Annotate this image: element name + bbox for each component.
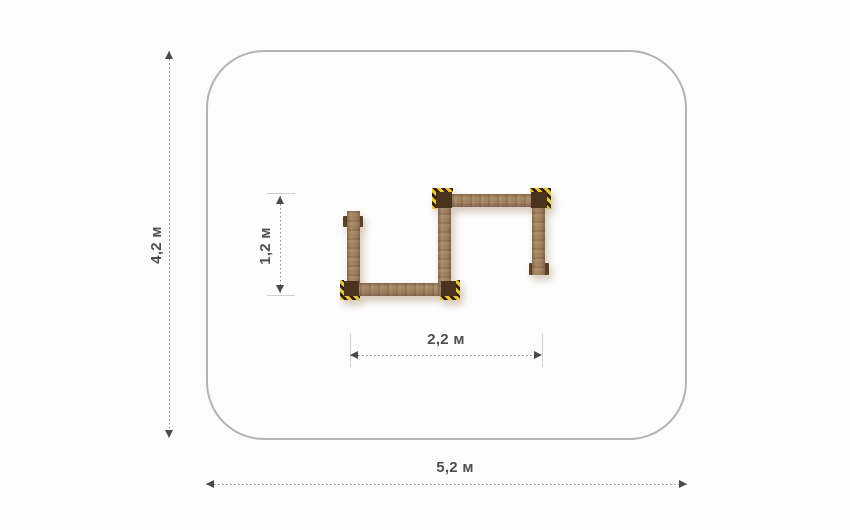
corner-guard-top-left bbox=[433, 189, 452, 208]
dimension-tick bbox=[267, 295, 295, 296]
dimension-line bbox=[350, 355, 542, 356]
hazard-stripe bbox=[530, 188, 551, 192]
dimension-tick bbox=[267, 193, 295, 194]
hazard-stripe bbox=[340, 296, 360, 300]
dimension-line bbox=[206, 484, 687, 485]
dimension-tick bbox=[542, 334, 543, 367]
corner-guard-bottom-right bbox=[441, 281, 459, 299]
hazard-stripe bbox=[440, 296, 460, 300]
arrowhead-left-icon bbox=[206, 480, 214, 488]
corner-guard-bottom-left bbox=[341, 281, 359, 299]
arrowhead-up-icon bbox=[276, 196, 284, 204]
arrowhead-right-icon bbox=[679, 480, 687, 488]
arrowhead-down-icon bbox=[165, 430, 173, 438]
dimension-label: 2,2 м bbox=[396, 331, 496, 348]
dimension-line bbox=[169, 51, 170, 438]
arrowhead-left-icon bbox=[350, 351, 358, 359]
dimension-label: 1,2 м bbox=[257, 206, 273, 286]
arrowhead-right-icon bbox=[534, 351, 542, 359]
installation-plan-diagram: 4,2 м 5,2 м 1,2 м 2,2 м bbox=[0, 0, 850, 530]
dimension-label: 5,2 м bbox=[405, 459, 505, 476]
arrowhead-down-icon bbox=[276, 285, 284, 293]
dimension-line bbox=[280, 196, 281, 293]
arrowhead-up-icon bbox=[165, 51, 173, 59]
corner-guard-top-right bbox=[531, 189, 550, 208]
hazard-stripe bbox=[432, 188, 453, 192]
dimension-label: 4,2 м bbox=[148, 205, 164, 285]
